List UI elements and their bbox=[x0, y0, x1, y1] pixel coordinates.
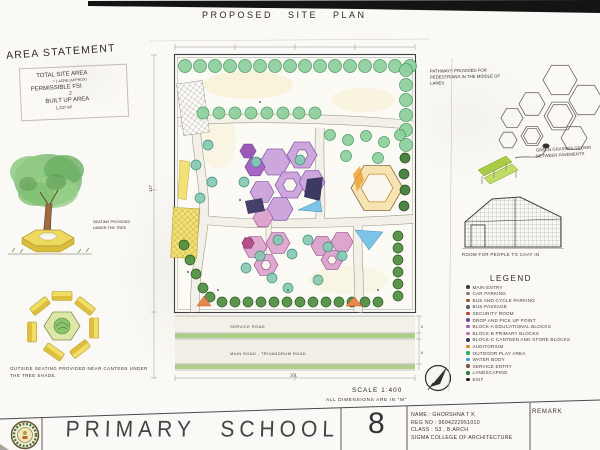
legend-heading: LEGEND bbox=[490, 274, 596, 283]
dim-road-label: 6 bbox=[421, 325, 423, 329]
legend-label: CAR PARKING bbox=[473, 291, 507, 296]
dim-road-label: 6 bbox=[421, 351, 423, 355]
legend-item: AUDITORIUM bbox=[466, 344, 596, 349]
legend-label: AUDITORIUM bbox=[473, 344, 504, 349]
canteen-seating-note: OUTSIDE SEATING PROVIDED NEAR CANTEEN UN… bbox=[10, 366, 148, 379]
legend-label: MAIN ENTRY bbox=[473, 285, 503, 290]
hexagon-concept-sketch bbox=[470, 58, 600, 198]
title-block-info: NAME : GHORSHNA T K REG NO : 96942229510… bbox=[411, 412, 526, 442]
tree-sketch bbox=[0, 142, 100, 267]
legend-label: LANDSCAPING bbox=[473, 370, 508, 375]
legend-item: CAR PARKING bbox=[466, 291, 596, 296]
legend-label: DROP AND PICK UP POINT bbox=[473, 318, 536, 323]
legend-swatch bbox=[466, 345, 470, 349]
sheet-title: PROPOSED SITE PLAN bbox=[202, 10, 367, 20]
legend-swatch bbox=[466, 351, 470, 355]
legend-swatch bbox=[466, 332, 470, 336]
legend-swatch bbox=[466, 292, 470, 296]
legend-label: BLOCK-B PRIMARY BLOCKS bbox=[473, 331, 540, 336]
drawing-sheet: PROPOSED SITE PLAN AREA STATEMENT TOTAL … bbox=[0, 0, 600, 450]
student-name: NAME : GHORSHNA T K bbox=[411, 412, 526, 420]
legend-item: WATER BODY bbox=[466, 357, 596, 362]
sheet-number: 8 bbox=[368, 407, 385, 441]
legend-item: MAIN ENTRY bbox=[466, 285, 596, 290]
legend-swatch bbox=[466, 378, 470, 382]
legend-label: BUS AND CYCLE PARKING bbox=[473, 298, 536, 303]
legend-swatch bbox=[466, 358, 470, 362]
legend-item: BLOCK-A EDUCATIONAL BLOCKS bbox=[466, 324, 596, 329]
register-number: REG NO : 9694222951010 bbox=[411, 420, 526, 428]
class-line: CLASS : S3 , B.ARCH bbox=[411, 427, 526, 435]
legend-item: SECURITY ROOM bbox=[466, 311, 596, 316]
main-road-label: MAIN ROAD - TRIVANDRUM ROAD bbox=[230, 351, 306, 356]
north-arrow bbox=[420, 360, 456, 396]
legend-label: BLOCK-A EDUCATIONAL BLOCKS bbox=[473, 324, 551, 329]
legend-label: BLOCK-C CANTEEN AND STORE BLOCKS bbox=[473, 337, 571, 342]
remark-heading: REMARK bbox=[532, 409, 562, 415]
legend-swatch bbox=[466, 338, 470, 342]
legend-swatch bbox=[466, 305, 470, 309]
legend-item: BUS PASSAGE bbox=[466, 304, 596, 309]
legend-label: WATER BODY bbox=[473, 357, 505, 362]
gazebo-sketch bbox=[460, 192, 568, 254]
public-roads bbox=[175, 316, 415, 370]
legend-label: OUTDOOR PLAY AREA bbox=[473, 351, 526, 356]
legend-item: EXIT bbox=[466, 377, 596, 382]
area-statement-box: TOTAL SITE AREA = 1 ACRE (APPROX) PERMIS… bbox=[19, 64, 129, 122]
legend-swatch bbox=[466, 364, 470, 368]
project-title: PRIMARY SCHOOL bbox=[65, 417, 339, 443]
scale-note: SCALE 1:400 bbox=[352, 387, 402, 394]
legend-item: SERVICE ENTRY bbox=[466, 364, 596, 369]
legend-item: LANDSCAPING bbox=[466, 370, 596, 375]
legend-swatch bbox=[466, 325, 470, 329]
dimension-note: ALL DIMENSIONS ARE IN "M" bbox=[326, 398, 407, 403]
legend-swatch bbox=[466, 371, 470, 375]
legend-label: SECURITY ROOM bbox=[473, 311, 514, 316]
dim-width-label: 101 bbox=[290, 373, 298, 378]
legend-label: EXIT bbox=[473, 377, 484, 382]
college-logo bbox=[8, 420, 42, 450]
college-name: SIGMA COLLEGE OF ARCHITECTURE bbox=[411, 435, 526, 443]
area-statement-heading: AREA STATEMENT bbox=[6, 42, 116, 62]
service-road-label: SERVICE ROAD bbox=[230, 324, 265, 329]
gazebo-note: ROOM FOR PEOPLE TO CHAT IN bbox=[462, 252, 539, 257]
legend-swatch bbox=[466, 285, 470, 289]
legend-label: SERVICE ENTRY bbox=[473, 364, 512, 369]
legend-item: DROP AND PICK UP POINT bbox=[466, 318, 596, 323]
legend-item: BLOCK-C CANTEEN AND STORE BLOCKS bbox=[466, 337, 596, 342]
legend-swatch bbox=[466, 318, 470, 322]
legend-list: MAIN ENTRYCAR PARKINGBUS AND CYCLE PARKI… bbox=[466, 285, 596, 382]
legend-item: OUTDOOR PLAY AREA bbox=[466, 351, 596, 356]
legend: LEGEND MAIN ENTRYCAR PARKINGBUS AND CYCL… bbox=[466, 274, 596, 382]
legend-label: BUS PASSAGE bbox=[473, 304, 508, 309]
legend-item: BUS AND CYCLE PARKING bbox=[466, 298, 596, 303]
legend-item: BLOCK-B PRIMARY BLOCKS bbox=[466, 331, 596, 336]
hex-seating-diagram bbox=[14, 286, 110, 366]
legend-swatch bbox=[466, 299, 470, 303]
site-plan: 147 6 6 101 bbox=[148, 40, 424, 396]
dim-height-label: 147 bbox=[148, 184, 153, 192]
tree-seating-note: SEATING PROVIDED UNDER THE TREE bbox=[93, 220, 141, 231]
pergola-sketch bbox=[478, 156, 518, 184]
legend-swatch bbox=[466, 312, 470, 316]
